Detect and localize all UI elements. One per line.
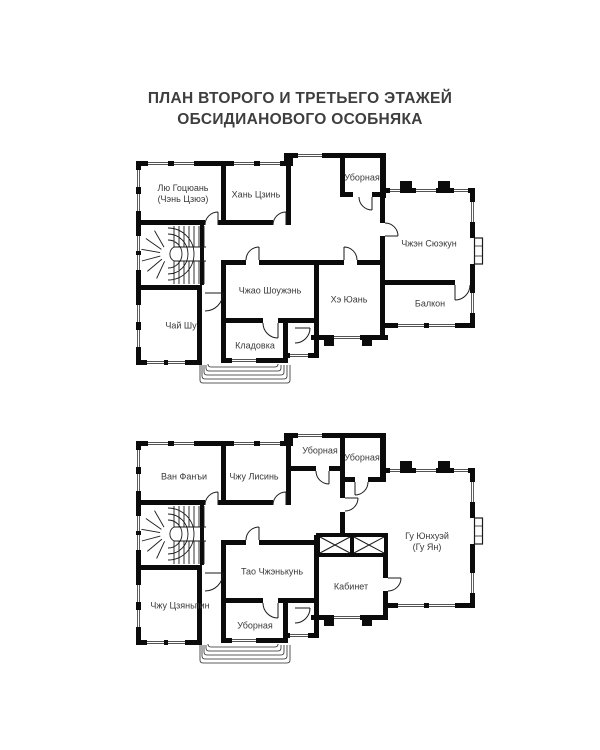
staircase — [141, 506, 206, 564]
floorplans-drawing — [0, 0, 600, 750]
room-label-kabinet: Кабинет — [334, 581, 368, 592]
room-label-ubornaya-f3-1: Уборная — [302, 445, 338, 456]
room-label-balkon: Балкон — [415, 298, 445, 309]
exterior-steps — [200, 644, 290, 663]
room-label-chzhao-shouzhen: Чжао Шоужэнь — [239, 285, 302, 296]
staircase — [141, 226, 206, 284]
room-label-chai-shu: Чай Шу — [165, 320, 196, 331]
exterior-steps — [200, 364, 290, 383]
room-label-khe-yuan: Хэ Юань — [331, 294, 368, 305]
room-label-ubornaya-f3-3: Уборная — [237, 620, 273, 631]
bay-window — [470, 518, 483, 544]
room-label-ubornaya-f2: Уборная — [344, 172, 380, 183]
bay-window — [470, 238, 483, 264]
room-label-kladovka: Кладовка — [235, 340, 275, 351]
room-label-chzhu-lisin: Чжу Лисинь — [229, 471, 278, 482]
floor-plan-page: ПЛАН ВТОРОГО И ТРЕТЬЕГО ЭТАЖЕЙ ОБСИДИАНО… — [0, 0, 600, 750]
room-label-chzhu-tszyanpin: Чжу Цзяньпин — [150, 600, 209, 611]
room-label-van-fani: Ван Фанъи — [161, 471, 207, 482]
room-label-chzhen-syuekun: Чжэн Сюэкун — [401, 238, 456, 249]
room-label-ubornaya-f3-2: Уборная — [344, 452, 380, 463]
room-label-lyu-gotsyuan: Лю Гоцюань (Чэнь Цзюэ) — [152, 183, 214, 206]
room-label-khan-tszin: Хань Цзинь — [232, 189, 281, 200]
room-label-tao-chzhenkun: Тао Чжэнькунь — [241, 566, 303, 577]
hatched-void — [316, 533, 388, 557]
room-label-gu-yunkhuey: Гу Юнхуэй (Гу Ян) — [401, 531, 453, 554]
